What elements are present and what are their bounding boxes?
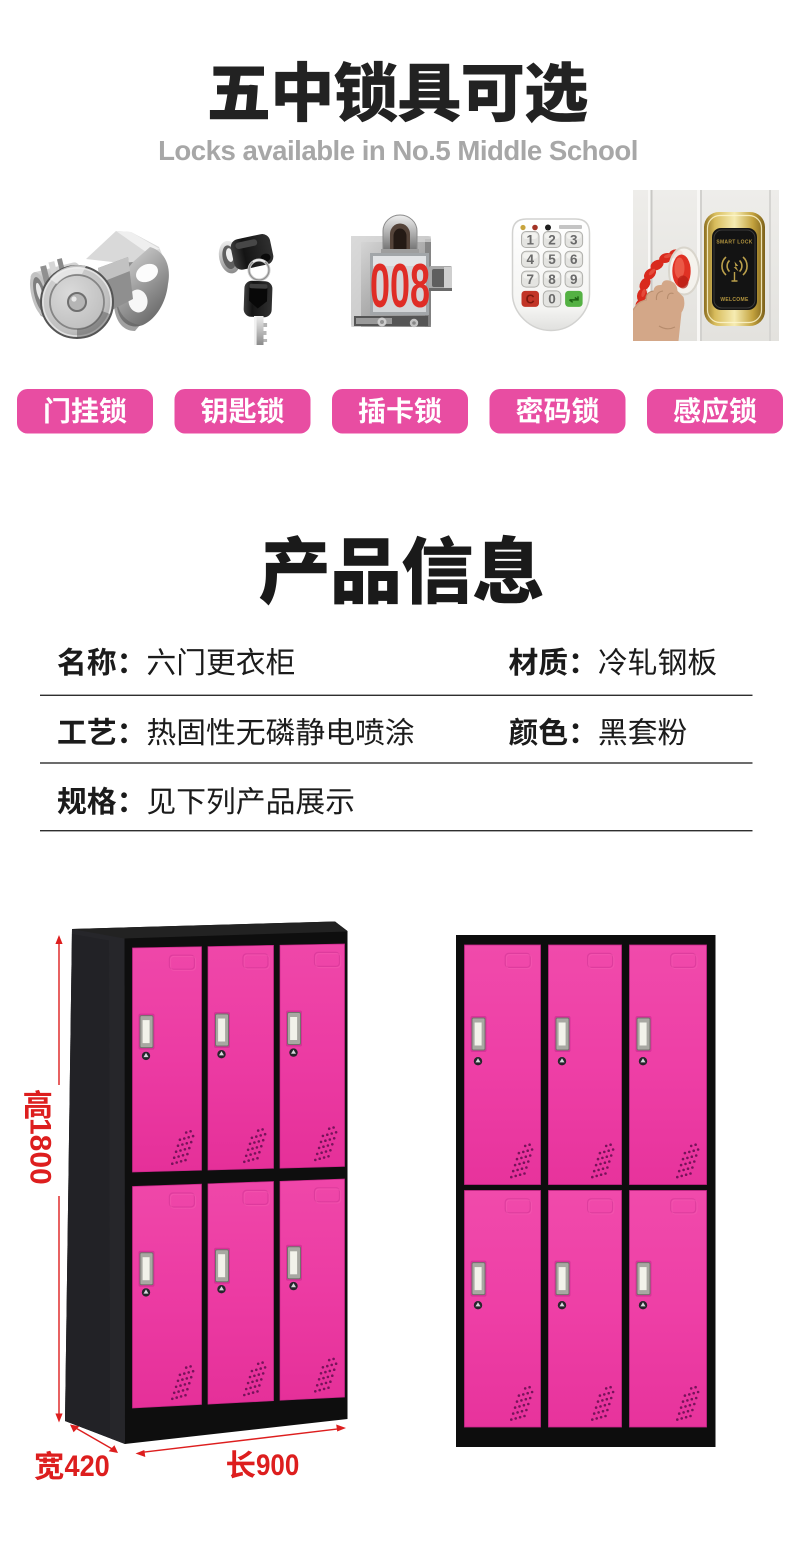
svg-text:1800: 1800 xyxy=(24,1118,57,1185)
svg-text:2: 2 xyxy=(548,232,556,247)
svg-text:008: 008 xyxy=(370,251,430,321)
svg-text:6: 6 xyxy=(570,252,578,267)
svg-text:420: 420 xyxy=(65,1450,110,1483)
svg-text:3: 3 xyxy=(570,232,578,247)
svg-text:9: 9 xyxy=(570,272,578,287)
svg-text:WELCOME: WELCOME xyxy=(720,297,749,303)
svg-text:1: 1 xyxy=(526,232,534,247)
svg-text:8: 8 xyxy=(548,272,556,287)
svg-text:C: C xyxy=(526,293,535,307)
svg-text:4: 4 xyxy=(526,252,534,267)
svg-text:SMART LOCK: SMART LOCK xyxy=(716,240,752,246)
svg-text:5: 5 xyxy=(548,252,556,267)
svg-text:0: 0 xyxy=(548,292,556,307)
svg-text:Locks available in No.5 Middle: Locks available in No.5 Middle School xyxy=(158,135,638,166)
svg-text:7: 7 xyxy=(526,272,534,287)
svg-text:900: 900 xyxy=(256,1448,299,1481)
